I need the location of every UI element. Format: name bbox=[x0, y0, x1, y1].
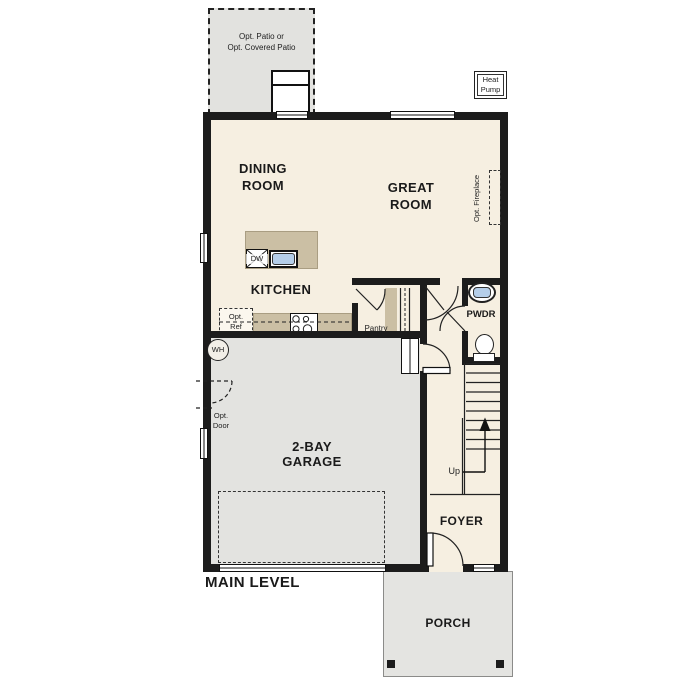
optional-fireplace-outline bbox=[489, 170, 501, 225]
heat-pump-line2: Pump bbox=[478, 85, 503, 95]
foyer-label: FOYER bbox=[425, 514, 498, 528]
wall-interior-top-a bbox=[352, 278, 440, 285]
opt-ref-label: Opt. Ref bbox=[219, 312, 253, 331]
heat-pump-line1: Heat bbox=[478, 75, 503, 85]
heat-pump-unit: Heat Pump bbox=[474, 71, 507, 99]
toilet-tank bbox=[473, 353, 495, 362]
great-room-label: GREAT ROOM bbox=[374, 179, 448, 213]
wall-right bbox=[500, 112, 508, 572]
heat-pump-label: Heat Pump bbox=[477, 74, 504, 96]
porch-post-right bbox=[496, 660, 504, 668]
wall-hall-lower bbox=[420, 371, 427, 565]
dining-line1: DINING bbox=[226, 160, 300, 177]
window-dining-left bbox=[200, 233, 208, 263]
patio-label-line1: Opt. Patio or bbox=[208, 31, 315, 42]
opt-ref-line1: Opt. bbox=[219, 312, 253, 322]
dining-line2: ROOM bbox=[226, 177, 300, 194]
opt-door-line2: Door bbox=[203, 421, 239, 431]
chimney-divider bbox=[273, 84, 308, 86]
patio-label-line2: Opt. Covered Patio bbox=[208, 42, 315, 53]
plan-title: MAIN LEVEL bbox=[205, 574, 365, 591]
front-door-opening bbox=[429, 564, 463, 572]
water-heater-label: WH bbox=[207, 345, 229, 355]
window-dining-top bbox=[276, 111, 308, 119]
up-label: Up bbox=[438, 466, 460, 476]
garage-line1: 2-BAY bbox=[271, 439, 353, 454]
floor-plan: Opt. Patio or Opt. Covered Patio Heat Pu… bbox=[0, 0, 687, 687]
chimney bbox=[271, 70, 310, 115]
opt-door-line1: Opt. bbox=[203, 411, 239, 421]
porch-label: PORCH bbox=[383, 616, 513, 630]
porch-post-left bbox=[387, 660, 395, 668]
garage-overhead-door bbox=[219, 564, 386, 572]
dining-room-label: DINING ROOM bbox=[226, 160, 300, 194]
great-line2: ROOM bbox=[374, 196, 448, 213]
island-sink-basin bbox=[272, 253, 295, 265]
garage-step bbox=[401, 338, 419, 374]
great-line1: GREAT bbox=[374, 179, 448, 196]
window-great-room-top bbox=[390, 111, 455, 119]
kitchen-label: KITCHEN bbox=[240, 281, 322, 298]
opt-door-label: Opt. Door bbox=[203, 411, 239, 430]
pwdr-label: PWDR bbox=[459, 309, 503, 320]
window-garage-left bbox=[200, 428, 208, 459]
pwdr-sink-basin bbox=[473, 287, 491, 298]
dw-label: DW bbox=[246, 254, 268, 264]
pantry-label: Pantry bbox=[352, 323, 400, 334]
opt-fireplace-label: Opt. Fireplace bbox=[472, 167, 486, 229]
opt-ref-line2: Ref bbox=[219, 322, 253, 332]
wall-top bbox=[203, 112, 508, 120]
toilet-bowl bbox=[475, 334, 494, 355]
wall-hall-upper bbox=[420, 278, 427, 344]
garage-dashed-area bbox=[218, 491, 385, 563]
garage-label: 2-BAY GARAGE bbox=[271, 439, 353, 469]
patio-label: Opt. Patio or Opt. Covered Patio bbox=[208, 31, 315, 53]
window-foyer-sidelite bbox=[473, 564, 495, 572]
garage-line2: GARAGE bbox=[271, 454, 353, 469]
